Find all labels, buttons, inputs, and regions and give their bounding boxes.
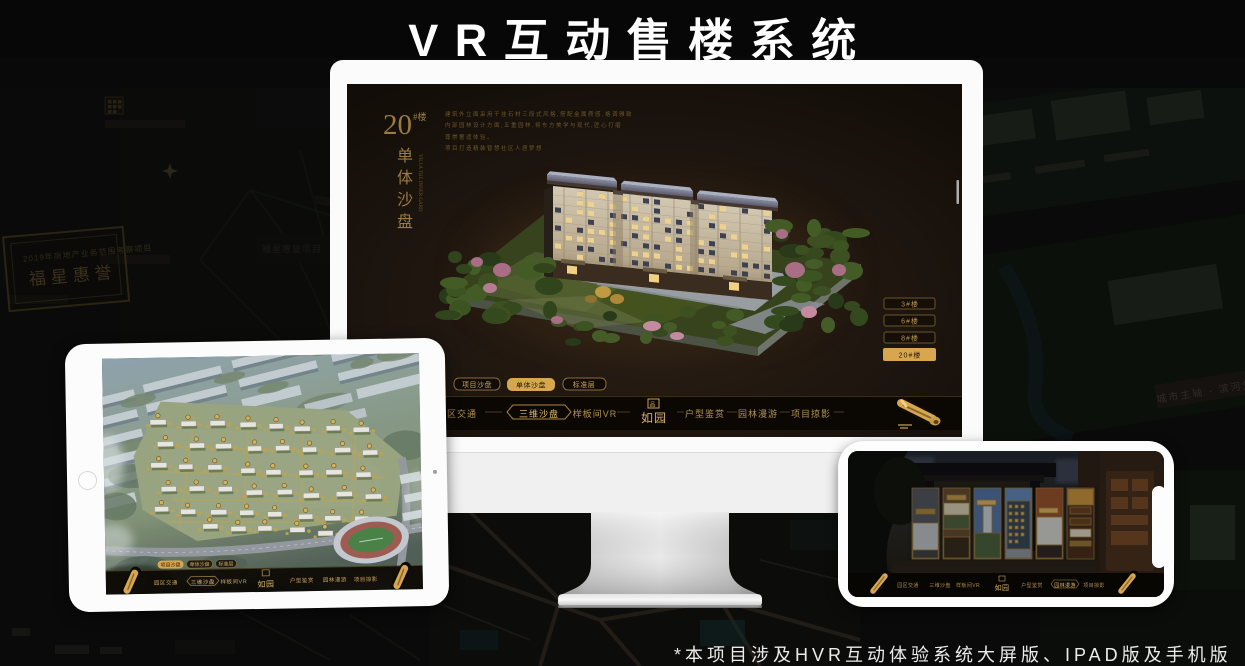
svg-text:福星惠誉项目: 福星惠誉项目 bbox=[262, 243, 322, 254]
svg-text:尊崇奢适体验。: 尊崇奢适体验。 bbox=[445, 133, 494, 141]
svg-text:户型鉴赏: 户型鉴赏 bbox=[1021, 582, 1043, 589]
svg-text:项目打造精装智慧社区人居梦想: 项目打造精装智慧社区人居梦想 bbox=[445, 144, 543, 152]
svg-text:园林漫游: 园林漫游 bbox=[738, 408, 778, 419]
svg-text:如园: 如园 bbox=[641, 410, 667, 425]
svg-text:标准层: 标准层 bbox=[573, 380, 596, 389]
svg-text:单: 单 bbox=[397, 147, 413, 165]
svg-text:三维沙盘: 三维沙盘 bbox=[929, 582, 951, 589]
svg-text:项目沙盘: 项目沙盘 bbox=[160, 561, 180, 568]
svg-text:如园: 如园 bbox=[257, 579, 274, 589]
svg-text:标准层: 标准层 bbox=[218, 560, 233, 567]
svg-text:6#楼: 6#楼 bbox=[901, 317, 919, 326]
svg-text:沙: 沙 bbox=[397, 192, 413, 209]
svg-text:项目掠影: 项目掠影 bbox=[1083, 582, 1105, 589]
svg-text:样板间VR: 样板间VR bbox=[956, 582, 980, 589]
svg-text:项目掠影: 项目掠影 bbox=[791, 408, 831, 419]
svg-text:品: 品 bbox=[649, 402, 656, 409]
svg-text:3#楼: 3#楼 bbox=[901, 300, 919, 309]
svg-text:户型鉴赏: 户型鉴赏 bbox=[685, 408, 725, 419]
svg-text:盘: 盘 bbox=[397, 212, 413, 231]
svg-text:区交通: 区交通 bbox=[447, 408, 477, 419]
svg-text:单体沙盘: 单体沙盘 bbox=[189, 561, 209, 568]
svg-text:#楼: #楼 bbox=[413, 111, 427, 122]
svg-text:项目沙盘: 项目沙盘 bbox=[462, 380, 492, 389]
svg-text:建筑外立面采用干挂石材三段式风格,搭配金属质感,格调雅致: 建筑外立面采用干挂石材三段式风格,搭配金属质感,格调雅致 bbox=[445, 110, 633, 118]
svg-text:内部园林设计方面,五重园林,将东方美学与现代,匠心打磨: 内部园林设计方面,五重园林,将东方美学与现代,匠心打磨 bbox=[445, 121, 622, 129]
svg-text:三维沙盘: 三维沙盘 bbox=[519, 408, 559, 419]
svg-text:8#楼: 8#楼 bbox=[901, 334, 919, 343]
svg-text:VILLA THE INNER GARD: VILLA THE INNER GARD bbox=[417, 154, 422, 212]
svg-text:20: 20 bbox=[383, 109, 412, 141]
svg-text:样板间VR: 样板间VR bbox=[573, 408, 618, 419]
svg-text:单体沙盘: 单体沙盘 bbox=[516, 381, 546, 390]
svg-text:体: 体 bbox=[397, 169, 413, 187]
svg-text:园区交通: 园区交通 bbox=[897, 582, 919, 589]
svg-text:20#楼: 20#楼 bbox=[899, 351, 922, 360]
svg-text:如园: 如园 bbox=[995, 583, 1010, 592]
